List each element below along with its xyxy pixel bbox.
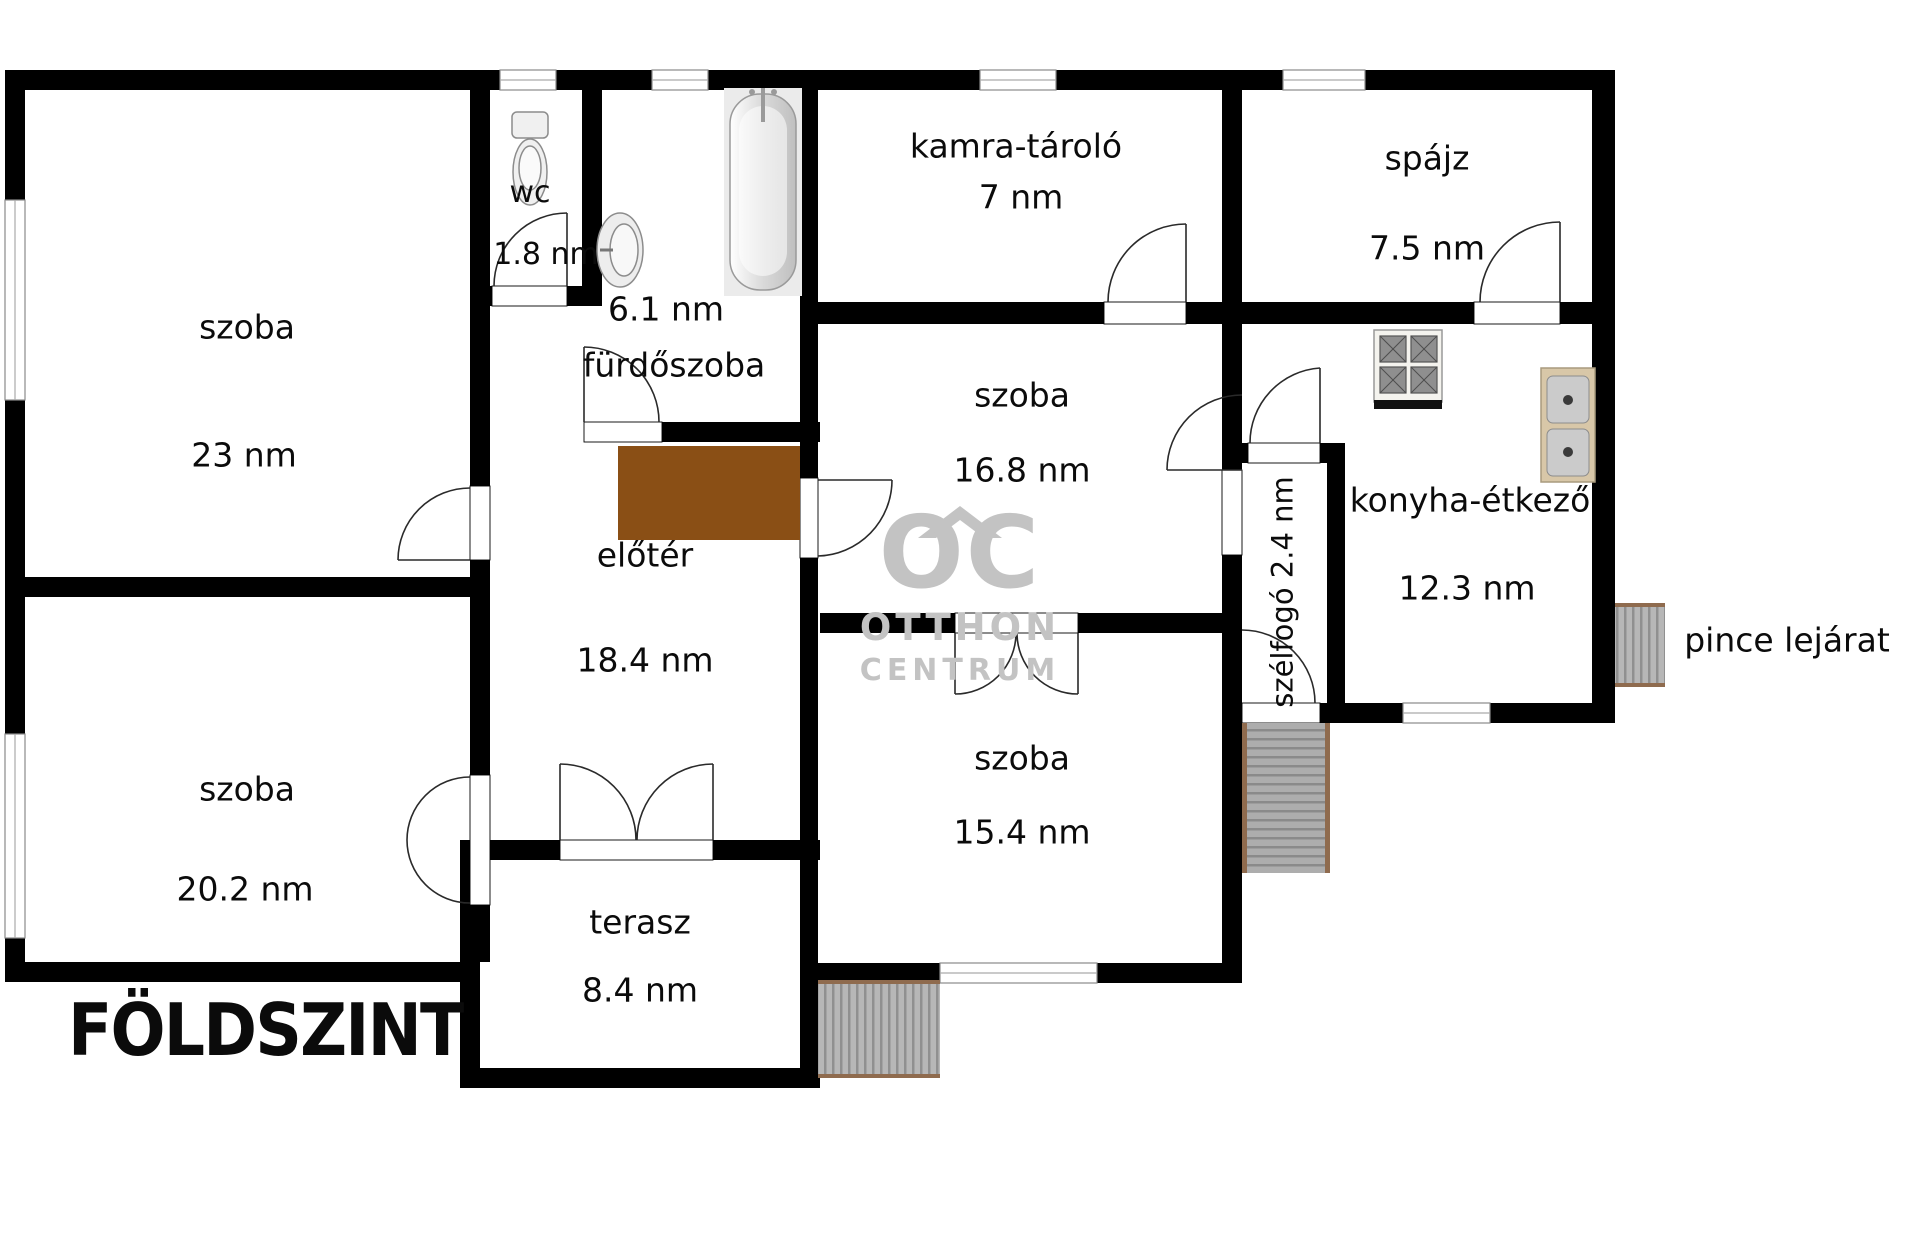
cabinet <box>618 446 800 540</box>
room-label-szoba154: szoba <box>974 742 1070 775</box>
room-area-szoba154: 15.4 nm <box>953 816 1090 849</box>
watermark-logo-text: OC <box>830 505 1090 600</box>
stove-icon <box>1374 330 1442 409</box>
bathroom-sink-icon <box>597 213 643 287</box>
watermark-line2: CENTRUM <box>830 653 1090 688</box>
bathtub-icon <box>724 88 802 296</box>
floor-title: FÖLDSZINT <box>68 988 462 1072</box>
basement-entrance-label: pince lejárat <box>1684 624 1890 657</box>
room-label-terasz: terasz <box>589 906 691 939</box>
watermark-line1: OTTHON <box>830 606 1090 649</box>
room-area-eloter: 18.4 nm <box>576 644 713 677</box>
walls <box>5 70 1615 1088</box>
stairs-terasz-side <box>818 980 940 1078</box>
room-area-furdoszoba: 6.1 nm <box>608 293 724 326</box>
room-label-wc: wc <box>509 178 550 208</box>
room-area-szoba23: 23 nm <box>191 439 297 472</box>
room-area-konyha: 12.3 nm <box>1398 572 1535 605</box>
stairs-szelfogo-entrance <box>1242 723 1330 873</box>
room-label-konyha: konyha-étkező <box>1350 484 1591 517</box>
room-label-eloter: előtér <box>597 539 693 572</box>
watermark: OC OTTHON CENTRUM <box>830 505 1090 688</box>
stairs-basement <box>1615 603 1665 687</box>
room-area-terasz: 8.4 nm <box>582 974 698 1007</box>
kitchen-sink-icon <box>1541 368 1595 482</box>
room-label-kamra: kamra-tároló <box>910 130 1122 163</box>
room-label-szoba168: szoba <box>974 379 1070 412</box>
room-label-furdoszoba: fürdőszoba <box>583 349 766 382</box>
room-label-szoba202: szoba <box>199 773 295 806</box>
room-label-szelfogo: szélfogó 2.4 nm <box>1269 476 1298 708</box>
room-area-wc: 1.8 nm <box>493 240 598 270</box>
room-area-szoba202: 20.2 nm <box>176 873 313 906</box>
room-area-szoba168: 16.8 nm <box>953 454 1090 487</box>
room-label-szoba23: szoba <box>199 311 295 344</box>
room-label-spajz: spájz <box>1385 142 1470 175</box>
room-area-kamra: 7 nm <box>979 181 1064 214</box>
floorplan-canvas: szoba 23 nm szoba 20.2 nm wc 1.8 nm 6.1 … <box>0 0 1920 1254</box>
room-area-spajz: 7.5 nm <box>1369 232 1485 265</box>
